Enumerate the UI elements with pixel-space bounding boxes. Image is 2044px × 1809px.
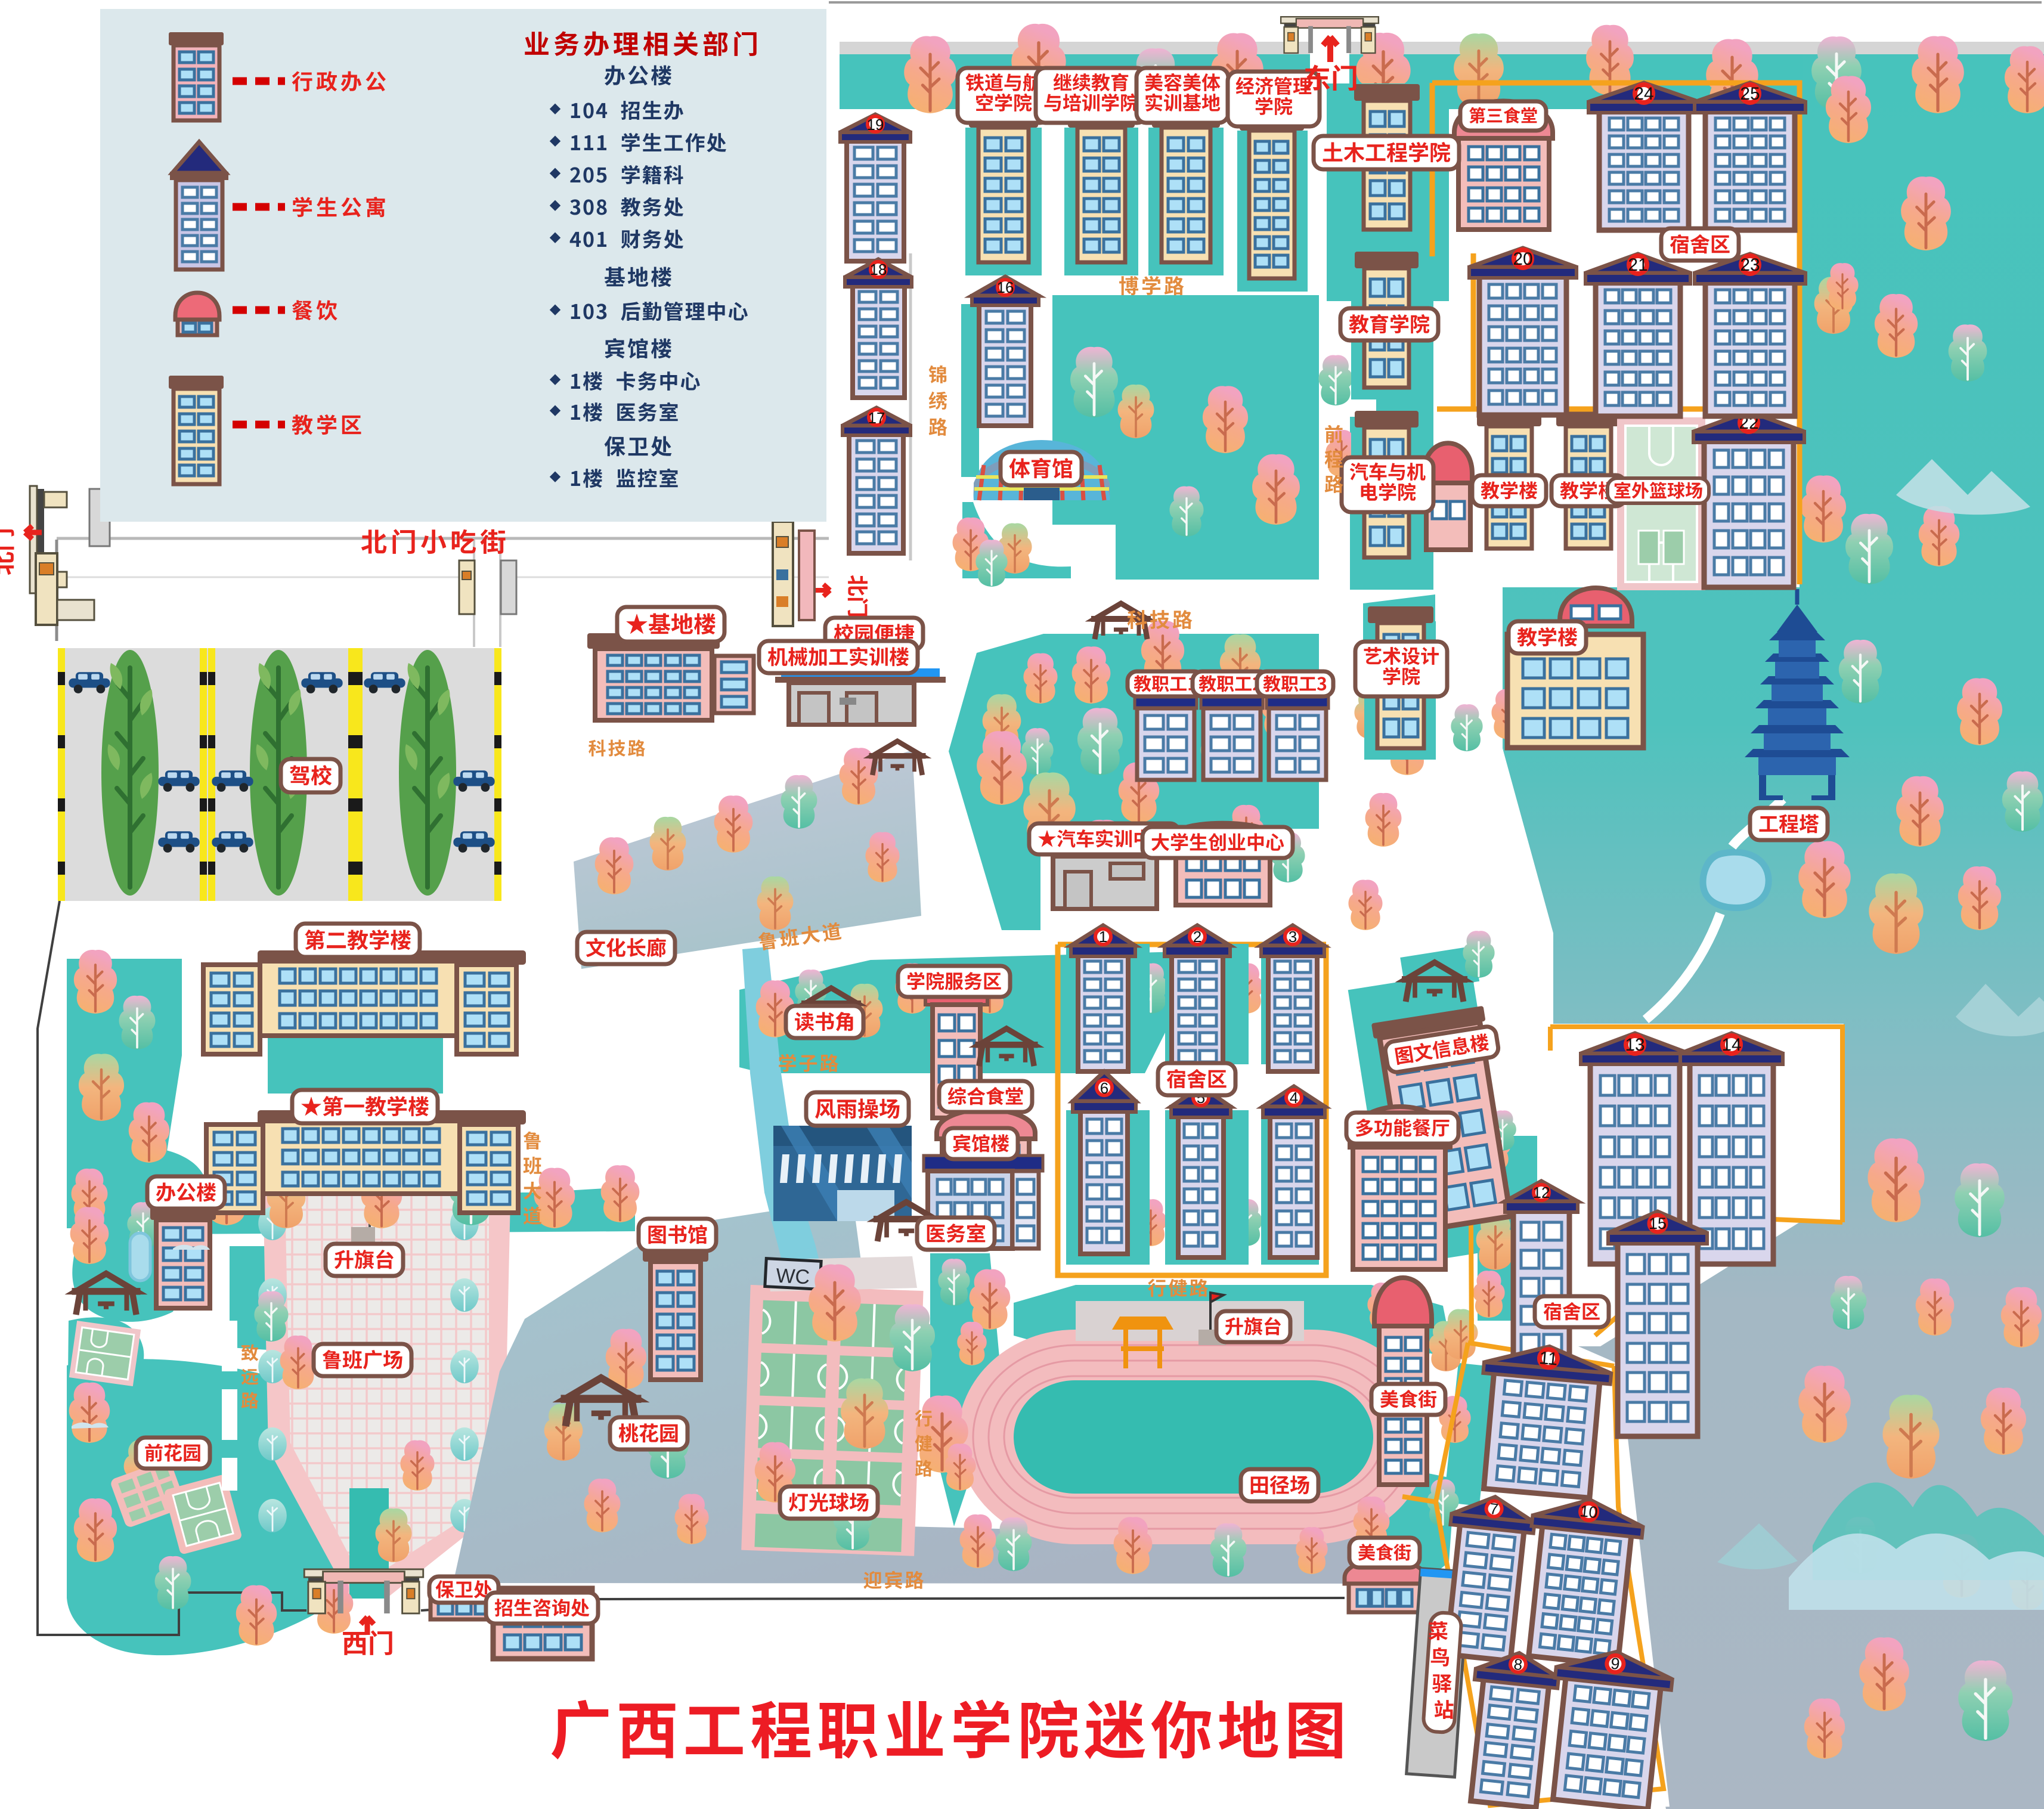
svg-text:13: 13 <box>1625 1035 1645 1055</box>
svg-text:20: 20 <box>1513 249 1532 269</box>
svg-text:1: 1 <box>1099 928 1107 946</box>
svg-text:6: 6 <box>1100 1079 1108 1097</box>
svg-text:21: 21 <box>1628 255 1647 275</box>
svg-text:WC: WC <box>775 1265 810 1289</box>
svg-text:19: 19 <box>867 116 884 134</box>
svg-text:11: 11 <box>1538 1348 1559 1370</box>
svg-text:14: 14 <box>1721 1035 1741 1055</box>
svg-text:25: 25 <box>1740 84 1760 104</box>
svg-text:23: 23 <box>1740 255 1760 275</box>
svg-text:9: 9 <box>1610 1655 1621 1673</box>
svg-text:2: 2 <box>1193 928 1201 946</box>
svg-text:16: 16 <box>997 278 1014 296</box>
svg-text:17: 17 <box>868 409 885 427</box>
svg-text:10: 10 <box>1579 1502 1599 1522</box>
svg-text:24: 24 <box>1634 84 1653 104</box>
svg-text:4: 4 <box>1290 1089 1298 1107</box>
svg-text:3: 3 <box>1289 928 1297 946</box>
svg-text:12: 12 <box>1533 1184 1550 1201</box>
svg-text:18: 18 <box>870 261 887 278</box>
svg-text:15: 15 <box>1649 1215 1667 1232</box>
